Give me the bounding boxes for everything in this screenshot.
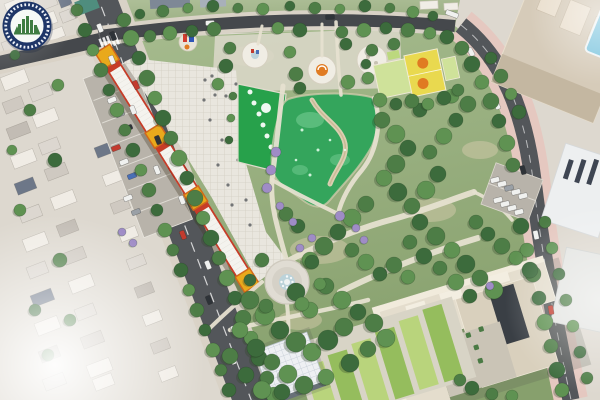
pedestrian-dot bbox=[208, 118, 211, 121]
tree bbox=[361, 59, 371, 69]
tree bbox=[247, 339, 265, 357]
pedestrian-dot bbox=[210, 74, 213, 77]
tree bbox=[492, 114, 506, 128]
tree bbox=[229, 92, 237, 100]
tree bbox=[436, 128, 452, 144]
tree bbox=[314, 278, 326, 290]
tree bbox=[119, 124, 131, 136]
tree bbox=[285, 1, 295, 11]
tree bbox=[305, 255, 319, 269]
flowering-tree bbox=[352, 224, 360, 232]
tree bbox=[207, 0, 219, 12]
pedestrian-dot bbox=[244, 198, 247, 201]
pedestrian-dot bbox=[216, 163, 219, 166]
tree bbox=[94, 63, 108, 77]
tree bbox=[183, 3, 193, 13]
tree bbox=[385, 3, 395, 13]
tree bbox=[424, 27, 436, 39]
tree bbox=[469, 215, 483, 229]
tree bbox=[437, 91, 451, 105]
tree bbox=[244, 274, 256, 286]
flowering-tree bbox=[360, 236, 368, 244]
tree bbox=[427, 227, 445, 245]
water-sparkle bbox=[317, 149, 320, 152]
tree bbox=[24, 104, 36, 116]
tree bbox=[512, 105, 526, 119]
tree bbox=[455, 41, 469, 55]
tree bbox=[483, 93, 499, 109]
tree bbox=[284, 46, 296, 58]
tree bbox=[132, 51, 146, 65]
tree bbox=[472, 270, 488, 286]
tree bbox=[513, 218, 529, 234]
tree bbox=[142, 183, 156, 197]
fountain-jet bbox=[252, 101, 257, 106]
tree bbox=[416, 248, 432, 264]
tree bbox=[87, 44, 99, 56]
tree bbox=[257, 3, 269, 15]
tree bbox=[167, 244, 179, 256]
tree bbox=[164, 131, 178, 145]
tree bbox=[433, 261, 447, 275]
pedestrian-dot bbox=[203, 78, 206, 81]
tree bbox=[380, 22, 392, 34]
pedestrian-dot bbox=[230, 203, 233, 206]
tree bbox=[388, 38, 400, 50]
tree bbox=[271, 321, 289, 339]
tree bbox=[460, 96, 476, 112]
aerial-render bbox=[0, 0, 600, 400]
tree bbox=[196, 211, 210, 225]
tree bbox=[401, 23, 415, 37]
tree bbox=[157, 5, 169, 17]
tree bbox=[358, 254, 374, 270]
tree bbox=[219, 59, 233, 73]
tree bbox=[294, 82, 306, 94]
tree bbox=[463, 289, 477, 303]
scene-svg bbox=[0, 0, 600, 400]
tree bbox=[207, 22, 221, 36]
tree bbox=[366, 44, 378, 56]
tree bbox=[387, 125, 405, 143]
tree bbox=[48, 153, 62, 167]
tree bbox=[272, 22, 284, 34]
tree bbox=[135, 9, 145, 19]
tree bbox=[335, 4, 345, 14]
tree bbox=[428, 11, 438, 21]
fountain-jet bbox=[265, 134, 270, 139]
tree bbox=[452, 84, 464, 96]
tree bbox=[259, 299, 273, 313]
tree bbox=[412, 214, 428, 230]
tree bbox=[417, 181, 435, 199]
tree bbox=[148, 91, 162, 105]
tree bbox=[139, 70, 155, 86]
tree bbox=[360, 341, 376, 357]
tree bbox=[241, 291, 259, 309]
tree bbox=[400, 140, 416, 156]
tree bbox=[163, 26, 177, 40]
flowering-tree bbox=[266, 165, 276, 175]
tree bbox=[494, 69, 508, 83]
tree bbox=[215, 364, 227, 376]
pedestrian-dot bbox=[226, 183, 229, 186]
tree bbox=[274, 384, 290, 400]
fountain-jet bbox=[257, 112, 262, 117]
pedestrian-dot bbox=[234, 82, 237, 85]
tree bbox=[359, 0, 371, 12]
tree bbox=[286, 332, 306, 352]
tree bbox=[238, 367, 254, 383]
tree bbox=[233, 3, 243, 13]
tree bbox=[103, 84, 115, 96]
tree bbox=[464, 56, 480, 72]
flowering-tree bbox=[308, 234, 316, 242]
pedestrian-dot bbox=[248, 223, 251, 226]
tree bbox=[403, 235, 417, 249]
tree bbox=[465, 381, 479, 395]
tree bbox=[255, 253, 269, 267]
tree bbox=[362, 72, 374, 84]
tree bbox=[449, 113, 463, 127]
tree bbox=[117, 13, 131, 27]
tree bbox=[232, 322, 248, 338]
fountain-jet bbox=[261, 103, 271, 113]
tree bbox=[341, 75, 355, 89]
tree bbox=[358, 196, 374, 212]
pedestrian-dot bbox=[202, 98, 205, 101]
tree bbox=[14, 204, 26, 216]
tree bbox=[126, 143, 140, 157]
tree bbox=[343, 209, 361, 227]
tree bbox=[387, 155, 405, 173]
tree bbox=[174, 263, 188, 277]
flowering-tree bbox=[335, 211, 345, 221]
tree bbox=[180, 171, 194, 185]
tree bbox=[135, 164, 147, 176]
tree bbox=[212, 251, 226, 265]
tree bbox=[227, 114, 235, 122]
vehicle bbox=[325, 14, 334, 19]
tree bbox=[295, 297, 309, 311]
water-sparkle bbox=[329, 139, 332, 142]
tree bbox=[506, 158, 520, 172]
tree bbox=[225, 136, 233, 144]
tree bbox=[52, 79, 64, 91]
tree bbox=[158, 223, 172, 237]
tree bbox=[475, 75, 489, 89]
pedestrian-dot bbox=[224, 94, 227, 97]
logo-building bbox=[26, 16, 29, 33]
tree bbox=[219, 270, 235, 286]
water-sparkle bbox=[301, 129, 304, 132]
tree bbox=[365, 314, 383, 332]
water-sparkle bbox=[309, 174, 312, 177]
tree bbox=[144, 30, 156, 42]
tree bbox=[499, 135, 515, 151]
tree bbox=[340, 38, 352, 50]
tree bbox=[405, 94, 419, 108]
tree bbox=[341, 354, 359, 372]
flowering-tree bbox=[276, 202, 284, 210]
fountain-jet bbox=[261, 123, 266, 128]
tree bbox=[444, 242, 460, 258]
tree bbox=[357, 23, 371, 37]
tree bbox=[123, 30, 139, 46]
flowering-tree bbox=[262, 183, 272, 193]
tree bbox=[376, 170, 392, 186]
flowering-tree bbox=[289, 218, 297, 226]
tree bbox=[401, 270, 415, 284]
tree bbox=[505, 88, 517, 100]
tree bbox=[151, 204, 163, 216]
tree bbox=[224, 42, 236, 54]
tree bbox=[345, 243, 359, 257]
tree bbox=[222, 348, 238, 364]
tree bbox=[171, 150, 187, 166]
tree bbox=[203, 230, 219, 246]
fountain-jet bbox=[248, 90, 253, 95]
water-sparkle bbox=[295, 159, 298, 162]
tree bbox=[336, 26, 348, 38]
tree bbox=[264, 354, 280, 370]
tree bbox=[330, 224, 346, 240]
tree bbox=[377, 329, 395, 347]
flowering-tree bbox=[296, 244, 304, 252]
tree bbox=[186, 25, 198, 37]
tree bbox=[481, 227, 495, 241]
tree bbox=[404, 198, 420, 214]
tree bbox=[390, 98, 402, 110]
flowering-tree bbox=[486, 282, 494, 290]
tree bbox=[7, 145, 17, 155]
tree bbox=[309, 2, 321, 14]
water-sparkle bbox=[344, 149, 346, 151]
tree bbox=[253, 381, 271, 399]
tree bbox=[222, 383, 236, 397]
tree bbox=[293, 23, 307, 37]
tree bbox=[389, 183, 407, 201]
tree bbox=[423, 145, 437, 159]
tree bbox=[335, 318, 353, 336]
tree bbox=[485, 52, 497, 64]
logo-building bbox=[30, 20, 33, 33]
tree bbox=[289, 67, 303, 81]
tree bbox=[407, 6, 419, 18]
tree bbox=[430, 166, 446, 182]
tree bbox=[448, 274, 464, 290]
tree bbox=[206, 343, 220, 357]
tree bbox=[315, 237, 333, 255]
tree bbox=[78, 23, 92, 37]
tree bbox=[373, 93, 387, 107]
tree bbox=[454, 374, 466, 386]
tree bbox=[295, 376, 313, 394]
tree bbox=[212, 78, 224, 90]
tree bbox=[155, 110, 171, 126]
logo-building bbox=[22, 19, 25, 33]
tree bbox=[318, 369, 334, 385]
flowering-tree bbox=[271, 147, 281, 157]
tree bbox=[110, 103, 124, 117]
tree bbox=[386, 257, 402, 273]
pedestrian-dot bbox=[220, 138, 223, 141]
tree bbox=[279, 365, 297, 383]
tree bbox=[506, 390, 518, 400]
tree bbox=[422, 98, 434, 110]
tree bbox=[494, 238, 510, 254]
tree bbox=[486, 388, 498, 400]
tree bbox=[440, 30, 454, 44]
tree bbox=[333, 291, 351, 309]
tree bbox=[457, 255, 475, 273]
pedestrian-dot bbox=[213, 93, 216, 96]
tree bbox=[187, 190, 203, 206]
tree bbox=[350, 304, 366, 320]
tree bbox=[374, 112, 390, 128]
sand-patch bbox=[462, 141, 498, 159]
